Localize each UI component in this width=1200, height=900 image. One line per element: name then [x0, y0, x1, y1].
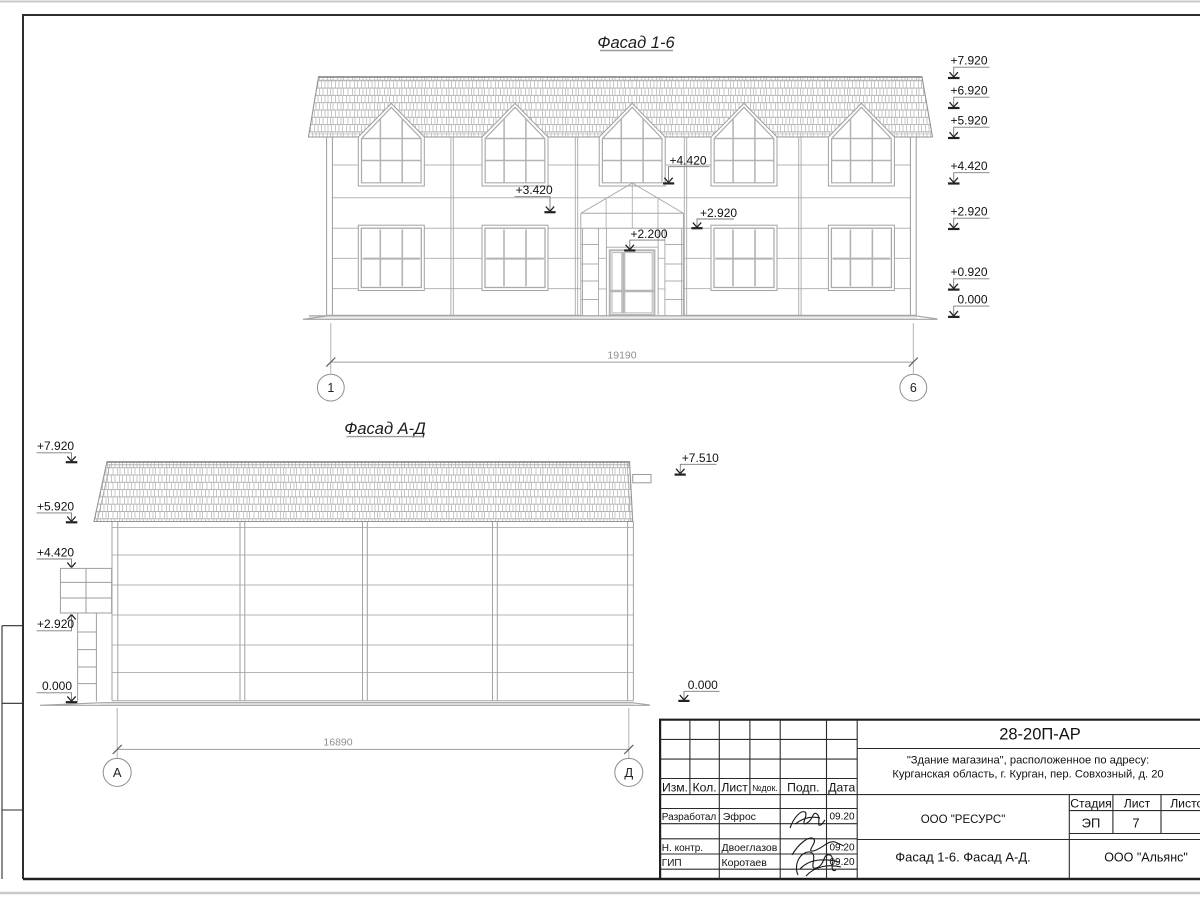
svg-text:+5.920: +5.920 — [950, 114, 987, 128]
svg-text:Дата: Дата — [828, 781, 855, 795]
svg-text:+2.920: +2.920 — [37, 617, 74, 631]
svg-text:0.000: 0.000 — [42, 679, 72, 693]
svg-text:28-20П-АР: 28-20П-АР — [999, 726, 1081, 744]
svg-text:19190: 19190 — [607, 349, 636, 361]
svg-text:№док.: №док. — [752, 783, 778, 793]
svg-text:+6.920: +6.920 — [950, 84, 987, 98]
svg-text:Эфрос: Эфрос — [723, 811, 756, 823]
svg-text:ЭП: ЭП — [1082, 816, 1101, 831]
svg-text:+7.510: +7.510 — [682, 451, 719, 465]
svg-text:+7.920: +7.920 — [37, 439, 74, 453]
svg-text:+5.920: +5.920 — [37, 499, 74, 513]
svg-text:ООО "Альянс": ООО "Альянс" — [1104, 851, 1188, 865]
svg-text:Подп.: Подп. — [787, 781, 819, 795]
svg-text:6: 6 — [910, 381, 917, 395]
svg-text:Листов: Листов — [1170, 797, 1200, 811]
svg-text:+7.920: +7.920 — [950, 54, 987, 68]
svg-text:Изм.: Изм. — [662, 781, 688, 795]
svg-text:Курганская область, г. Курган,: Курганская область, г. Курган, пер. Совх… — [892, 769, 1163, 781]
svg-text:Коротаев: Коротаев — [722, 857, 768, 869]
svg-text:Кол.: Кол. — [693, 781, 717, 795]
svg-text:ГИП: ГИП — [662, 858, 682, 869]
svg-text:+2.920: +2.920 — [700, 206, 737, 220]
svg-text:Фасад А-Д: Фасад А-Д — [344, 420, 426, 438]
svg-text:7: 7 — [1132, 816, 1139, 831]
svg-text:"Здание магазина", расположенн: "Здание магазина", расположенное по адре… — [907, 755, 1149, 767]
svg-text:0.000: 0.000 — [957, 293, 987, 307]
svg-text:Двоеглазов: Двоеглазов — [722, 842, 778, 854]
svg-text:А: А — [113, 765, 122, 780]
svg-text:16890: 16890 — [323, 737, 352, 749]
svg-text:Н. контр.: Н. контр. — [662, 843, 703, 854]
svg-text:0.000: 0.000 — [688, 678, 718, 692]
svg-text:09.20: 09.20 — [829, 811, 854, 822]
svg-text:09.20: 09.20 — [829, 857, 854, 868]
svg-text:1: 1 — [327, 381, 334, 395]
svg-text:09.20: 09.20 — [829, 842, 854, 853]
svg-text:Д: Д — [624, 765, 633, 780]
svg-text:+0.920: +0.920 — [950, 265, 987, 279]
svg-text:Фасад 1-6: Фасад 1-6 — [597, 34, 675, 52]
svg-text:+2.200: +2.200 — [631, 227, 668, 241]
svg-text:+4.420: +4.420 — [670, 153, 707, 167]
svg-text:Фасад 1-6. Фасад А-Д.: Фасад 1-6. Фасад А-Д. — [895, 850, 1031, 865]
svg-text:Разработал: Разработал — [662, 811, 717, 823]
svg-text:ООО "РЕСУРС": ООО "РЕСУРС" — [921, 814, 1006, 826]
svg-text:+4.420: +4.420 — [950, 159, 987, 173]
svg-text:+3.420: +3.420 — [516, 183, 553, 197]
svg-text:+2.920: +2.920 — [950, 205, 987, 219]
svg-text:Стадия: Стадия — [1070, 797, 1112, 811]
svg-text:Лист: Лист — [721, 781, 748, 795]
svg-text:+4.420: +4.420 — [37, 545, 74, 559]
svg-text:Лист: Лист — [1124, 797, 1151, 811]
